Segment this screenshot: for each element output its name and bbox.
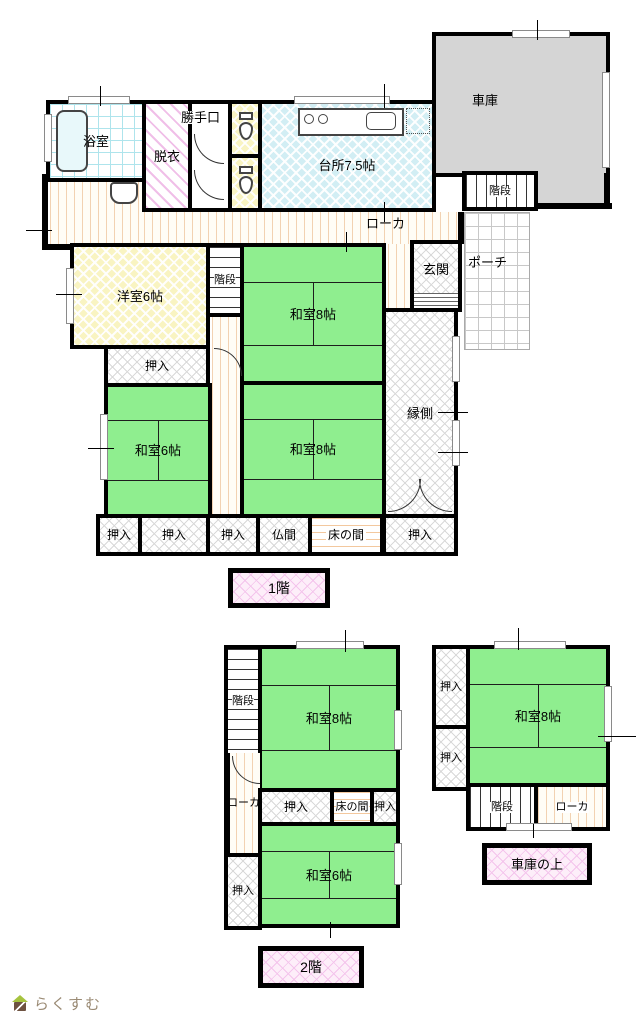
japanese-room8-label: 和室8帖 (290, 443, 336, 456)
window (604, 686, 612, 742)
room-closet: 押入 (206, 514, 260, 556)
room-japanese6: 和室6帖 (104, 383, 212, 518)
toilet-icon (239, 122, 253, 140)
stove-burner-icon (318, 114, 328, 124)
room-closet: 押入 (370, 788, 400, 826)
room-japanese8-south: 和室8帖 (240, 381, 386, 518)
refrigerator-outline (406, 108, 430, 134)
closet-label: 押入 (440, 753, 462, 764)
window (294, 96, 390, 104)
site-logo: らくすむ (12, 993, 102, 1014)
western-room-label: 洋室6帖 (117, 290, 163, 303)
dressing-label: 脱衣 (154, 150, 180, 163)
room-toilet-1 (228, 100, 262, 158)
room-toilet-2 (228, 154, 262, 212)
garage-extension (536, 173, 608, 207)
window (100, 414, 108, 480)
tatami-line (470, 747, 606, 748)
room-closet: 押入 (138, 514, 210, 556)
porch (464, 212, 530, 350)
window (394, 710, 402, 750)
tick-mark (26, 230, 52, 231)
stairs-label: 階段 (488, 186, 512, 197)
wall-segment (532, 203, 612, 209)
tick-mark (533, 824, 534, 838)
tick-mark (384, 84, 385, 108)
tick-mark (346, 232, 347, 252)
bathroom-label: 浴室 (83, 135, 109, 148)
japanese-room6-label: 和室6帖 (306, 869, 352, 882)
garage-door-opening (512, 30, 570, 38)
wall-segment (604, 173, 610, 209)
closet-label: 押入 (232, 886, 254, 897)
room-japanese6-2f: 和室6帖 (258, 822, 400, 928)
room-closet: 押入 (258, 788, 334, 826)
toilet-icon (239, 176, 253, 194)
window (452, 420, 460, 466)
hallway-label: ローカ (556, 802, 589, 813)
room-veranda: 縁側 (382, 308, 458, 518)
tick-mark (100, 86, 101, 106)
stairs-label: 階段 (232, 696, 254, 707)
room-alcove-2f: 床の間 (330, 788, 374, 826)
japanese-room8-label: 和室8帖 (515, 710, 561, 723)
room-closet-2f-left: 押入 (224, 853, 262, 930)
tick-mark (518, 628, 519, 650)
room-alcove: 床の間 (308, 514, 384, 556)
window (66, 268, 74, 324)
room-garage: 車庫 (432, 32, 610, 177)
porch-label: ポーチ (468, 256, 507, 269)
hallway-label: ローカ (227, 798, 260, 809)
tick-mark (330, 922, 331, 938)
door-arc (388, 479, 421, 512)
wall-segment (42, 174, 48, 250)
room-closet-2f-right-b: 押入 (432, 725, 470, 791)
window (296, 641, 364, 649)
floor2-label: 2階 (300, 960, 322, 974)
stairs-2f-left: 階段 (224, 645, 262, 757)
closet-label: 押入 (162, 529, 186, 541)
room-kitchen: 台所7.5帖 (258, 100, 436, 212)
floor1-label: 1階 (268, 581, 290, 595)
japanese-room8-label: 和室8帖 (306, 712, 352, 725)
entrance-label: 玄関 (423, 263, 449, 276)
window (44, 114, 52, 162)
window (394, 843, 402, 885)
house-body-icon (14, 1002, 26, 1011)
stairs-1f: 階段 (462, 171, 538, 211)
tatami-line (262, 898, 396, 899)
tatami-line (262, 750, 396, 751)
closet-label: 押入 (284, 801, 308, 813)
room-bathroom: 浴室 (46, 100, 146, 182)
alcove-label: 床の間 (336, 802, 369, 813)
window (602, 72, 610, 168)
garage-label: 車庫 (472, 94, 498, 107)
stove-burner-icon (304, 114, 314, 124)
room-entrance: 玄関 (410, 240, 462, 312)
above-garage-label-box: 車庫の上 (482, 843, 592, 885)
house-icon (12, 995, 29, 1012)
hallway-floor (212, 315, 242, 518)
sink-icon (366, 112, 396, 130)
window (494, 641, 566, 649)
washbasin-icon (110, 182, 138, 204)
room-western: 洋室6帖 (70, 243, 210, 349)
toilet-tank-icon (239, 112, 253, 120)
room-closet: 押入 (96, 514, 142, 556)
above-garage-label: 車庫の上 (511, 858, 563, 871)
back-door-label: 勝手口 (181, 111, 220, 124)
stairs-label: 階段 (490, 802, 514, 813)
floor2-label-box: 2階 (258, 946, 364, 988)
window (452, 336, 460, 382)
logo-text: らくすむ (34, 993, 102, 1014)
tick-mark (56, 294, 82, 295)
closet-label: 押入 (107, 529, 131, 541)
tatami-line (108, 480, 208, 481)
stairs-center-1f: 階段 (206, 243, 244, 317)
tatami-line (244, 345, 382, 346)
tick-mark (345, 630, 346, 652)
alcove-label: 床の間 (326, 529, 366, 541)
hallway-label: ローカ (366, 217, 405, 230)
hallway-floor (388, 244, 412, 310)
room-japanese8-2f-right: 和室8帖 (466, 645, 610, 787)
tick-mark (384, 202, 385, 222)
tick-mark (598, 736, 636, 737)
tick-mark (438, 452, 468, 453)
stairs-label: 階段 (214, 275, 236, 286)
kitchen-label: 台所7.5帖 (318, 159, 375, 172)
floor-plan: 車庫 ローカ 浴室 脱衣 勝手口 台所7.5帖 階段 (0, 0, 643, 1021)
room-closet-west: 押入 (104, 345, 210, 387)
closet-label: 押入 (221, 529, 245, 541)
room-buddhist: 仏間 (256, 514, 312, 556)
tick-mark (537, 20, 538, 40)
room-japanese8-north: 和室8帖 (240, 243, 386, 385)
toilet-tank-icon (239, 166, 253, 174)
window (68, 96, 130, 104)
room-closet: 押入 (382, 514, 458, 556)
tatami-line (244, 479, 382, 480)
tick-mark (88, 448, 114, 449)
veranda-label: 縁側 (407, 407, 433, 420)
japanese-room8-label: 和室8帖 (290, 308, 336, 321)
japanese-room6-label: 和室6帖 (135, 444, 181, 457)
closet-label: 押入 (440, 682, 462, 693)
closet-label: 押入 (374, 802, 396, 813)
house-roof-icon (12, 995, 28, 1002)
room-japanese8-2f-left: 和室8帖 (258, 645, 400, 792)
floor1-label-box: 1階 (228, 568, 330, 608)
door-arc (419, 479, 452, 512)
room-closet-2f-right-a: 押入 (432, 645, 470, 729)
window (506, 823, 572, 831)
tick-mark (438, 412, 468, 413)
buddhist-room-label: 仏間 (272, 529, 296, 541)
closet-label: 押入 (145, 360, 169, 372)
closet-label: 押入 (408, 529, 432, 541)
entrance-step (414, 293, 458, 308)
